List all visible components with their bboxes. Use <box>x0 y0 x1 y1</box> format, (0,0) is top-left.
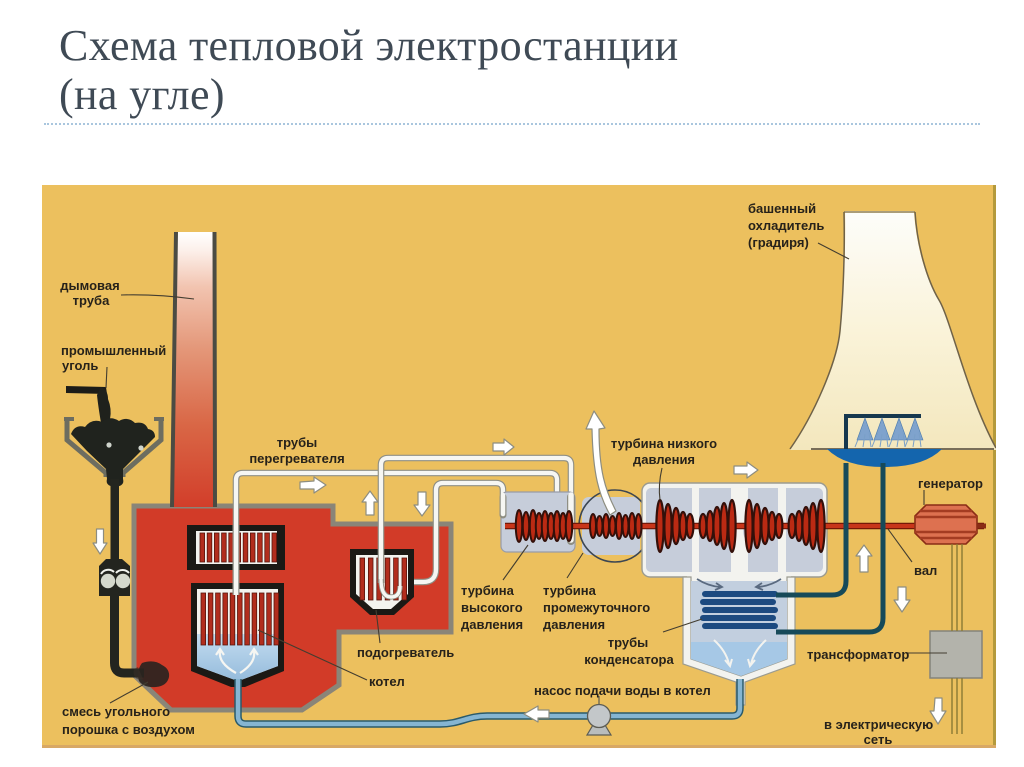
svg-text:сеть: сеть <box>864 732 893 747</box>
svg-text:трансформатор: трансформатор <box>807 647 909 662</box>
svg-text:турбина: турбина <box>461 583 515 598</box>
svg-text:промышленный: промышленный <box>61 343 166 358</box>
svg-text:вал: вал <box>914 563 937 578</box>
svg-text:(градиря): (градиря) <box>748 235 809 250</box>
svg-text:трубы: трубы <box>277 435 318 450</box>
svg-text:подогреватель: подогреватель <box>357 645 454 660</box>
svg-text:перегревателя: перегревателя <box>249 451 344 466</box>
svg-text:порошка с воздухом: порошка с воздухом <box>62 722 195 737</box>
svg-text:давления: давления <box>461 617 523 632</box>
svg-text:дымовая: дымовая <box>60 278 119 293</box>
svg-text:турбина низкого: турбина низкого <box>611 436 717 451</box>
svg-text:высокого: высокого <box>461 600 523 615</box>
svg-text:давления: давления <box>543 617 605 632</box>
svg-text:турбина: турбина <box>543 583 597 598</box>
svg-text:котел: котел <box>369 674 405 689</box>
svg-text:уголь: уголь <box>62 358 98 373</box>
svg-text:конденсатора: конденсатора <box>584 652 674 667</box>
svg-text:генератор: генератор <box>918 476 983 491</box>
svg-text:охладитель: охладитель <box>748 218 824 233</box>
svg-text:давления: давления <box>633 452 695 467</box>
svg-text:смесь угольного: смесь угольного <box>62 704 170 719</box>
svg-text:башенный: башенный <box>748 201 816 216</box>
svg-text:промежуточного: промежуточного <box>543 600 650 615</box>
svg-text:насос подачи воды в котел: насос подачи воды в котел <box>534 683 711 698</box>
svg-text:трубы: трубы <box>608 635 649 650</box>
svg-text:в электрическую: в электрическую <box>824 717 933 732</box>
svg-text:труба: труба <box>73 293 110 308</box>
